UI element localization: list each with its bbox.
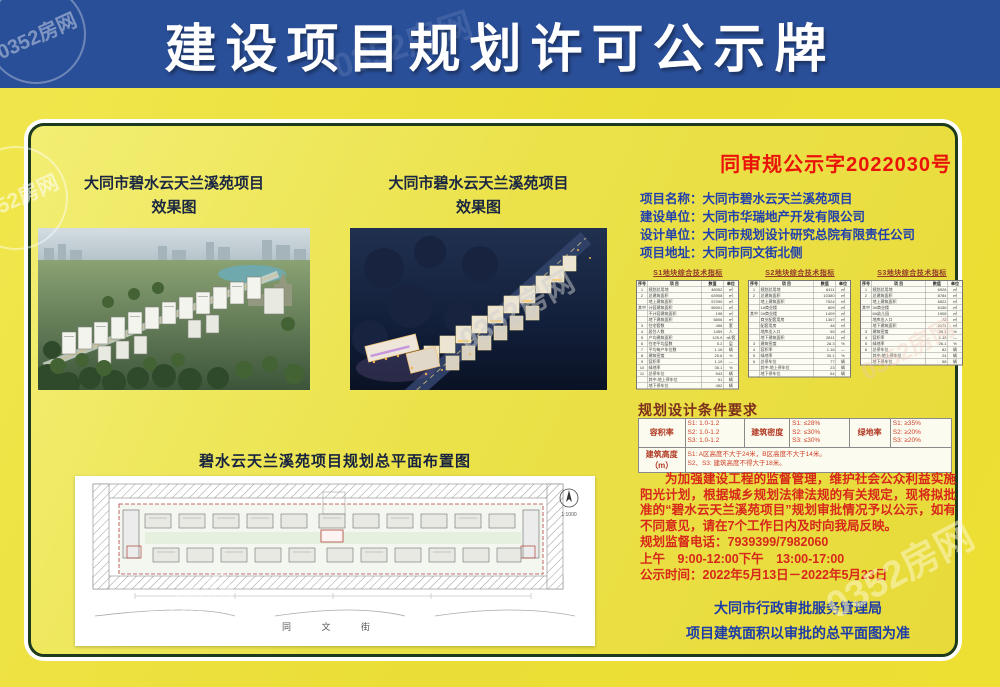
table-cell [637, 383, 648, 389]
info-address: 项目地址：大同市同文街北侧 [640, 244, 915, 262]
table-cell [749, 371, 760, 377]
table-cell: 452 [701, 383, 723, 389]
rendering-night-image [350, 228, 607, 390]
density-values: S1: ≤28% S2: ≤30% S3: ≤30% [790, 419, 849, 448]
info-builder: 建设单位：大同市华瑞地产开发有限公司 [640, 208, 915, 226]
rendering2-caption-line2: 效果图 [350, 196, 607, 220]
table-cell: 序号 [637, 281, 648, 287]
density-s3: S3: ≤30% [792, 437, 846, 446]
info-value: 大同市华瑞地产开发有限公司 [703, 210, 866, 224]
indicator-table-s2-title: S2地块综合技术指标 [748, 268, 852, 278]
rendering1-caption-line2: 效果图 [38, 196, 310, 220]
far-s1: S1: 1.0-1.2 [688, 420, 743, 429]
table-row: 地下停车位54辆 [749, 371, 851, 377]
table-cell: 序号 [749, 281, 760, 287]
info-value: 大同市同文街北侧 [703, 246, 803, 260]
height-line2: S2、S3: 建筑高度不得大于18米。 [688, 460, 949, 469]
info-label: 建设单位： [640, 210, 703, 224]
indicator-table-s3-title: S3地块综合技术指标 [860, 268, 964, 278]
table-cell: 序号 [861, 281, 872, 287]
green-s1: S1: ≥35% [893, 420, 949, 429]
notice-board: { "header": { "title": "建设项目规划许可公示牌" }, … [0, 0, 1000, 687]
info-designer: 设计单位：大同市规划设计研究总院有限责任公司 [640, 226, 915, 244]
green-s2: S2: ≥20% [893, 429, 949, 438]
table-cell: 辆 [836, 371, 851, 377]
table-cell: 54 [814, 371, 836, 377]
title-banner: 建设项目规划许可公示牌 [0, 0, 1000, 88]
rendering1-caption: 大同市碧水云天兰溪苑项目 效果图 [38, 172, 310, 220]
announcement-paragraph: 为加强建设工程的监督管理，维护社会公众利益实施阳光计划，根据城乡规划法律法规的有… [640, 472, 956, 534]
info-project-name: 项目名称：大同市碧水云天兰溪苑项目 [640, 190, 915, 208]
supervision-phone: 规划监督电话：7939399/7982060 [640, 535, 956, 551]
indicator-table-s3-body: 序号项 目数值单位1规划总用地6926㎡2总建筑面积8784㎡地上建筑面积652… [861, 281, 963, 366]
conditions-heading: 规划设计条件要求 [638, 400, 758, 420]
rendering-day-art [38, 228, 310, 390]
indicator-table-s1-title: S1地块综合技术指标 [636, 268, 740, 278]
height-line1: S1: A区高度不大于24米，B区高度不大于14米。 [688, 451, 949, 460]
siteplan-caption: 碧水云天兰溪苑项目规划总平面布置图 [75, 450, 595, 471]
indicator-table-s2-body: 序号项 目数值单位1规划总用地6411㎡2总建筑面积10380㎡地上建筑面积75… [749, 281, 851, 378]
siteplan-scale: 1:1000 [561, 512, 577, 518]
siteplan-drawing: 1:1000 同 文 街 [75, 476, 595, 646]
far-s2: S2: 1.0-1.2 [688, 429, 743, 438]
rendering2-caption-line1: 大同市碧水云天兰溪苑项目 [350, 172, 607, 196]
agency-name: 大同市行政审批服务管理局 [640, 596, 956, 621]
far-values: S1: 1.0-1.2 S2: 1.0-1.2 S3: 1.0-1.2 [685, 419, 745, 448]
info-value: 大同市规划设计研究总院有限责任公司 [703, 228, 916, 242]
siteplan-street-label: 同 文 街 [282, 621, 384, 632]
table-cell: 地下停车位 [647, 383, 701, 389]
density-s2: S2: ≤30% [792, 429, 846, 438]
table-cell: 其中 [637, 305, 648, 311]
page-title: 建设项目规划许可公示牌 [164, 7, 835, 82]
table-cell: 58 [926, 359, 948, 365]
green-label: 绿地率 [849, 419, 890, 448]
green-values: S1: ≥35% S2: ≥20% S3: ≥20% [890, 419, 951, 448]
announcement: 为加强建设工程的监督管理，维护社会公众利益实施阳光计划，根据城乡规划法律法规的有… [640, 472, 956, 584]
rendering-day-image [38, 228, 310, 390]
office-hours: 上午 9:00-12:00下午 13:00-17:00 [640, 552, 956, 568]
info-value: 大同市碧水云天兰溪苑项目 [703, 192, 853, 206]
table-cell: 辆 [948, 359, 963, 365]
table-cell: 其中 [861, 305, 872, 311]
table-row: 地下停车位452辆 [637, 383, 739, 389]
height-values: S1: A区高度不大于24米，B区高度不大于14米。 S2、S3: 建筑高度不得… [685, 447, 951, 472]
rendering-night-art [350, 228, 607, 390]
footer-note: 项目建筑面积以审批的总平面图为准 [640, 621, 956, 646]
table-row: 地下停车位58辆 [861, 359, 963, 365]
rendering1-caption-line1: 大同市碧水云天兰溪苑项目 [38, 172, 310, 196]
info-label: 设计单位： [640, 228, 703, 242]
table-cell [861, 359, 872, 365]
far-s3: S3: 1.0-1.2 [688, 437, 743, 446]
siteplan-image: 1:1000 同 文 街 [75, 476, 595, 646]
indicator-table-s1-body: 序号项 目数值单位1规划总用地48052㎡2总建筑面积63908㎡地上建筑面积5… [637, 281, 739, 390]
density-s1: S1: ≤28% [792, 420, 846, 429]
info-label: 项目地址： [640, 246, 703, 260]
document-number: 同审规公示字2022030号 [600, 148, 952, 177]
density-label: 建筑密度 [745, 419, 790, 448]
project-info: 项目名称：大同市碧水云天兰溪苑项目 建设单位：大同市华瑞地产开发有限公司 设计单… [640, 190, 915, 262]
height-label: 建筑高度（m） [639, 447, 686, 472]
table-cell: 地下停车位 [759, 371, 813, 377]
publicity-period: 公示时间：2022年5月13日－2022年5月23日 [640, 568, 956, 584]
info-label: 项目名称： [640, 192, 703, 206]
table-cell: 其中 [749, 311, 760, 317]
table-cell: 辆 [724, 383, 739, 389]
rendering2-caption: 大同市碧水云天兰溪苑项目 效果图 [350, 172, 607, 220]
conditions-table: 容积率 S1: 1.0-1.2 S2: 1.0-1.2 S3: 1.0-1.2 … [638, 418, 952, 473]
far-label: 容积率 [639, 419, 686, 448]
footer: 大同市行政审批服务管理局 项目建筑面积以审批的总平面图为准 [640, 596, 956, 646]
table-cell: 地下停车位 [871, 359, 926, 365]
green-s3: S3: ≥20% [893, 437, 949, 446]
